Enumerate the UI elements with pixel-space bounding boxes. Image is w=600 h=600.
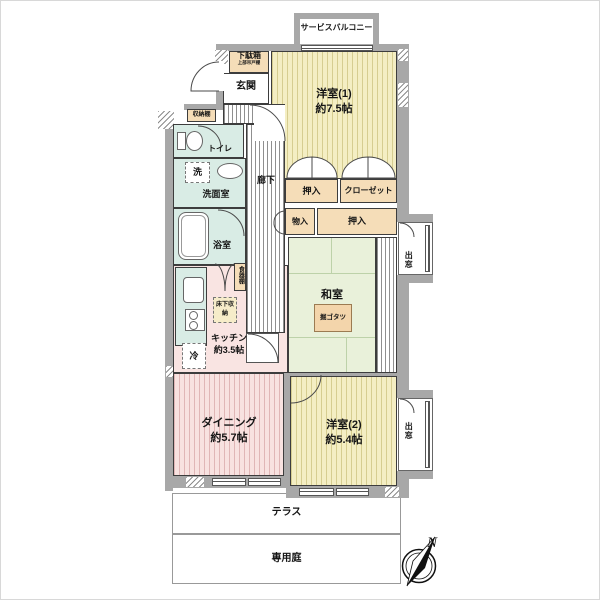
floorplan: サービスバルコニー 下駄箱 上部吊戸棚 玄関 収納棚 洋室(1) 約7.5帖 ト…: [0, 0, 600, 600]
bay-upper-label: 出窓: [403, 251, 414, 269]
getabako-note: 上部吊戸棚: [227, 61, 271, 66]
kitchen-label: キッチン 約3.5帖: [200, 333, 258, 356]
garden-label: 専用庭: [172, 552, 401, 566]
tatami-line: [289, 337, 375, 338]
terrace-window-1: [212, 478, 246, 486]
dining-name: ダイニング: [177, 416, 281, 431]
bay-upper-stub-top: [397, 214, 433, 222]
closet-label: クローゼット: [340, 179, 397, 203]
oshiire-upper-label: 押入: [285, 179, 338, 203]
burner-icon: [189, 311, 198, 320]
compass-needle-light: [407, 537, 435, 586]
kitchen-name: キッチン: [200, 333, 258, 345]
western1-name: 洋室(1): [281, 87, 387, 102]
bay-lower-stub-top: [397, 390, 433, 398]
terrace-window-4: [336, 488, 369, 496]
kitchen-size: 約3.5帖: [200, 345, 258, 357]
western2-name: 洋室(2): [292, 418, 396, 433]
washer-label: 洗: [185, 162, 210, 183]
tatami-line: [331, 238, 332, 273]
wash-basin: [217, 163, 243, 179]
shoe-shelf-label: 収納棚: [187, 109, 216, 122]
hatch-right-corner: [398, 49, 408, 61]
terrace-label: テラス: [172, 506, 401, 520]
terrace-window-3: [299, 488, 334, 496]
wall-right-1: [397, 44, 409, 214]
cupboard-label: 食器棚: [236, 266, 244, 284]
wall-left: [165, 122, 173, 491]
wall-right-2: [397, 283, 409, 390]
compass-north-letter: N: [426, 535, 438, 551]
monoire-label: 物入: [285, 208, 315, 235]
tatami-line: [289, 273, 375, 274]
getabako-label: 下駄箱 上部吊戸棚: [227, 52, 271, 66]
western2-label: 洋室(2) 約5.4帖: [292, 418, 396, 449]
western1-size: 約7.5帖: [281, 102, 387, 117]
washroom-label: 洗面室: [186, 188, 246, 201]
service-balcony-label: サービスバルコニー: [294, 22, 379, 33]
western2-size: 約5.4帖: [292, 433, 396, 448]
shoji-strip: [376, 237, 397, 373]
toilet-label: トイレ: [199, 143, 241, 154]
bay-lower-stub-bottom: [397, 471, 433, 479]
fridge-label: 冷: [182, 343, 206, 369]
bathroom-label: 浴室: [202, 239, 242, 252]
balcony-window: [301, 45, 373, 51]
bay-upper-glass: [425, 225, 430, 272]
genkan-label: 玄関: [223, 80, 269, 94]
tatami-line: [346, 338, 347, 372]
hallway-corridor: [246, 124, 285, 333]
hatch-bottom-left: [186, 477, 204, 487]
oshiire-center-label: 押入: [317, 208, 397, 235]
kotatsu-label: 掘ゴタツ: [314, 304, 352, 332]
hatch-toilet-corner: [158, 111, 174, 129]
terrace-window-2: [248, 478, 281, 486]
bay-lower-label: 出窓: [403, 422, 414, 440]
hallway-label: 廊下: [249, 174, 283, 187]
bay-lower-glass: [425, 401, 430, 468]
compass-outer-ring: [403, 550, 436, 583]
balcony-wall-top: [294, 13, 379, 19]
japanese-room-label: 和室: [294, 288, 370, 303]
kitchen-sink: [183, 277, 204, 303]
dining-size: 約5.7帖: [177, 431, 281, 446]
hatch-right-mid: [398, 83, 408, 107]
dining-label: ダイニング 約5.7帖: [177, 416, 281, 447]
toilet-tank: [177, 132, 186, 150]
underfloor-label: 床下収納: [214, 301, 236, 319]
bay-upper-stub-bottom: [397, 275, 433, 283]
hatch-bottom-right: [385, 487, 399, 497]
burner-icon: [189, 321, 198, 330]
compass-needle-dark: [407, 537, 435, 586]
western1-label: 洋室(1) 約7.5帖: [281, 87, 387, 118]
compass: N: [403, 535, 439, 586]
compass-inner-ring: [406, 553, 432, 579]
